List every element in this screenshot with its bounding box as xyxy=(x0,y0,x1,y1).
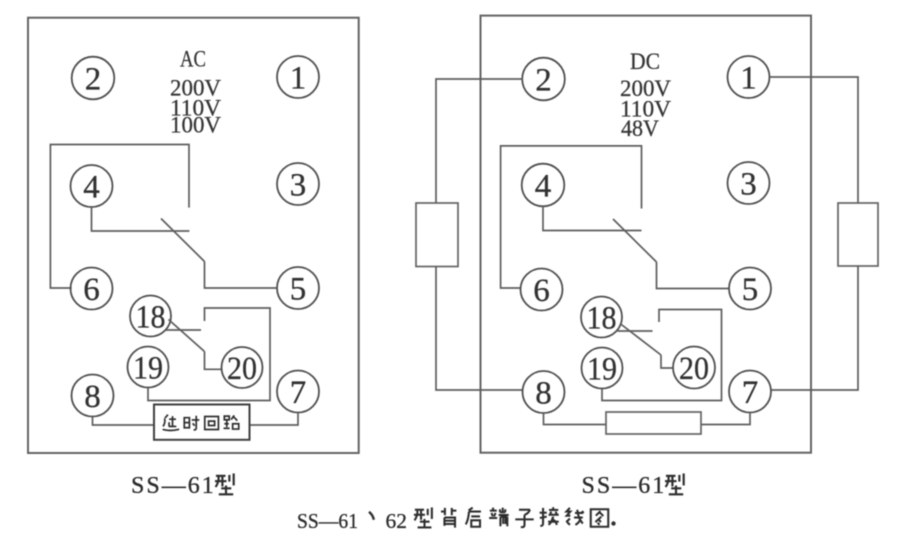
svg-text:AC: AC xyxy=(180,47,206,72)
svg-text:48V: 48V xyxy=(621,116,659,141)
svg-text:19: 19 xyxy=(133,351,163,387)
svg-text:SS—61: SS—61 xyxy=(297,509,358,533)
svg-text:4: 4 xyxy=(83,170,100,206)
svg-text:5: 5 xyxy=(742,272,759,308)
svg-text:100V: 100V xyxy=(170,113,221,138)
svg-text:2: 2 xyxy=(85,62,102,98)
svg-text:DC: DC xyxy=(630,49,660,74)
svg-text:5: 5 xyxy=(290,272,307,308)
svg-text:2: 2 xyxy=(535,63,552,99)
svg-text:3: 3 xyxy=(290,168,307,204)
svg-text:3: 3 xyxy=(740,167,757,203)
svg-text:7: 7 xyxy=(742,375,759,411)
svg-text:18: 18 xyxy=(587,301,617,337)
svg-text:8: 8 xyxy=(535,376,552,412)
svg-text:SS—61: SS—61 xyxy=(131,473,216,499)
svg-text:7: 7 xyxy=(290,375,307,411)
svg-text:20: 20 xyxy=(227,351,257,387)
svg-text:19: 19 xyxy=(587,352,617,388)
svg-text:6: 6 xyxy=(83,272,100,308)
svg-text:62: 62 xyxy=(386,509,408,533)
svg-text:SS—61: SS—61 xyxy=(582,473,667,499)
svg-text:1: 1 xyxy=(290,61,307,97)
svg-text:4: 4 xyxy=(535,169,552,205)
svg-text:6: 6 xyxy=(533,273,550,309)
svg-text:1: 1 xyxy=(740,61,757,97)
svg-text:18: 18 xyxy=(136,300,166,336)
svg-text:8: 8 xyxy=(84,379,101,415)
svg-text:20: 20 xyxy=(679,351,709,387)
